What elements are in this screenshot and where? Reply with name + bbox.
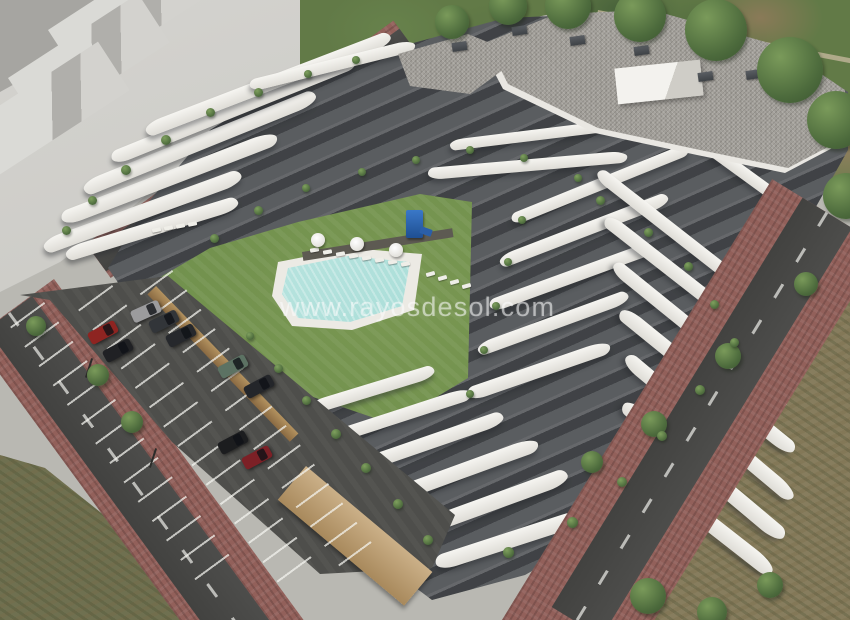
sun-lounger — [323, 249, 333, 255]
sun-lounger — [176, 223, 186, 229]
terrace-plant — [574, 174, 582, 182]
terrace-plant — [206, 108, 215, 117]
terrace-plant — [466, 146, 474, 154]
terrace-plant — [246, 332, 254, 340]
terrace-plant — [503, 547, 514, 558]
sun-lounger — [438, 275, 448, 281]
watermark: www.rayosdesol.com — [280, 292, 555, 323]
street-tree — [794, 272, 818, 296]
terrace-plant — [596, 196, 605, 205]
terrace-plant — [358, 168, 366, 176]
sun-lounger — [450, 279, 460, 285]
terrace-plant — [710, 300, 719, 309]
sun-lounger — [388, 259, 398, 265]
terrace-plant — [331, 429, 341, 439]
terrace-plant — [88, 196, 97, 205]
sun-lounger — [349, 253, 359, 259]
terrace-plant — [518, 216, 526, 224]
pool-umbrella — [350, 237, 364, 251]
terrace-plant — [617, 477, 627, 487]
street-tree — [581, 451, 603, 473]
terrace-plant — [695, 385, 705, 395]
terrace-plant — [254, 88, 263, 97]
sun-lounger — [375, 257, 385, 263]
pool-umbrella — [311, 233, 325, 247]
terrace-plant — [567, 517, 578, 528]
render-stage: www.rayosdesol.com — [0, 0, 850, 620]
terrace-plant — [274, 364, 283, 373]
bush — [757, 572, 783, 598]
street-tree — [87, 364, 109, 386]
terrace-plant — [423, 535, 433, 545]
playground — [406, 210, 423, 238]
street-tree — [121, 411, 143, 433]
terrace-plant — [393, 499, 403, 509]
sun-lounger — [362, 255, 372, 261]
sun-lounger — [310, 247, 320, 253]
terrace-plant — [412, 156, 420, 164]
street-tree — [26, 316, 46, 336]
terrace-plant — [302, 396, 311, 405]
terrace-plant — [161, 135, 171, 145]
terrace-plant — [466, 390, 474, 398]
sun-lounger — [164, 225, 174, 231]
terrace-plant — [657, 431, 667, 441]
terrace-plant — [62, 226, 71, 235]
terrace-plant — [302, 184, 310, 192]
terrace-plant — [684, 262, 693, 271]
sun-lounger — [188, 221, 198, 227]
pool-umbrella — [389, 243, 403, 257]
terrace-plant — [504, 258, 512, 266]
bush — [697, 597, 727, 620]
sun-lounger — [426, 271, 436, 277]
terrace-plant — [480, 346, 488, 354]
terrace-plant — [730, 338, 739, 347]
terrace-plant — [210, 234, 219, 243]
terrace-plant — [520, 154, 528, 162]
bush — [630, 578, 666, 614]
terrace-plant — [254, 206, 263, 215]
sun-lounger — [336, 251, 346, 257]
terrace-plant — [352, 56, 360, 64]
sun-lounger — [462, 283, 472, 289]
terrace-plant — [121, 165, 131, 175]
terrace-plant — [644, 228, 653, 237]
sun-lounger — [401, 261, 411, 267]
terrace-plant — [304, 70, 312, 78]
sun-lounger — [152, 227, 162, 233]
street-tree — [715, 343, 741, 369]
terrace-plant — [361, 463, 371, 473]
